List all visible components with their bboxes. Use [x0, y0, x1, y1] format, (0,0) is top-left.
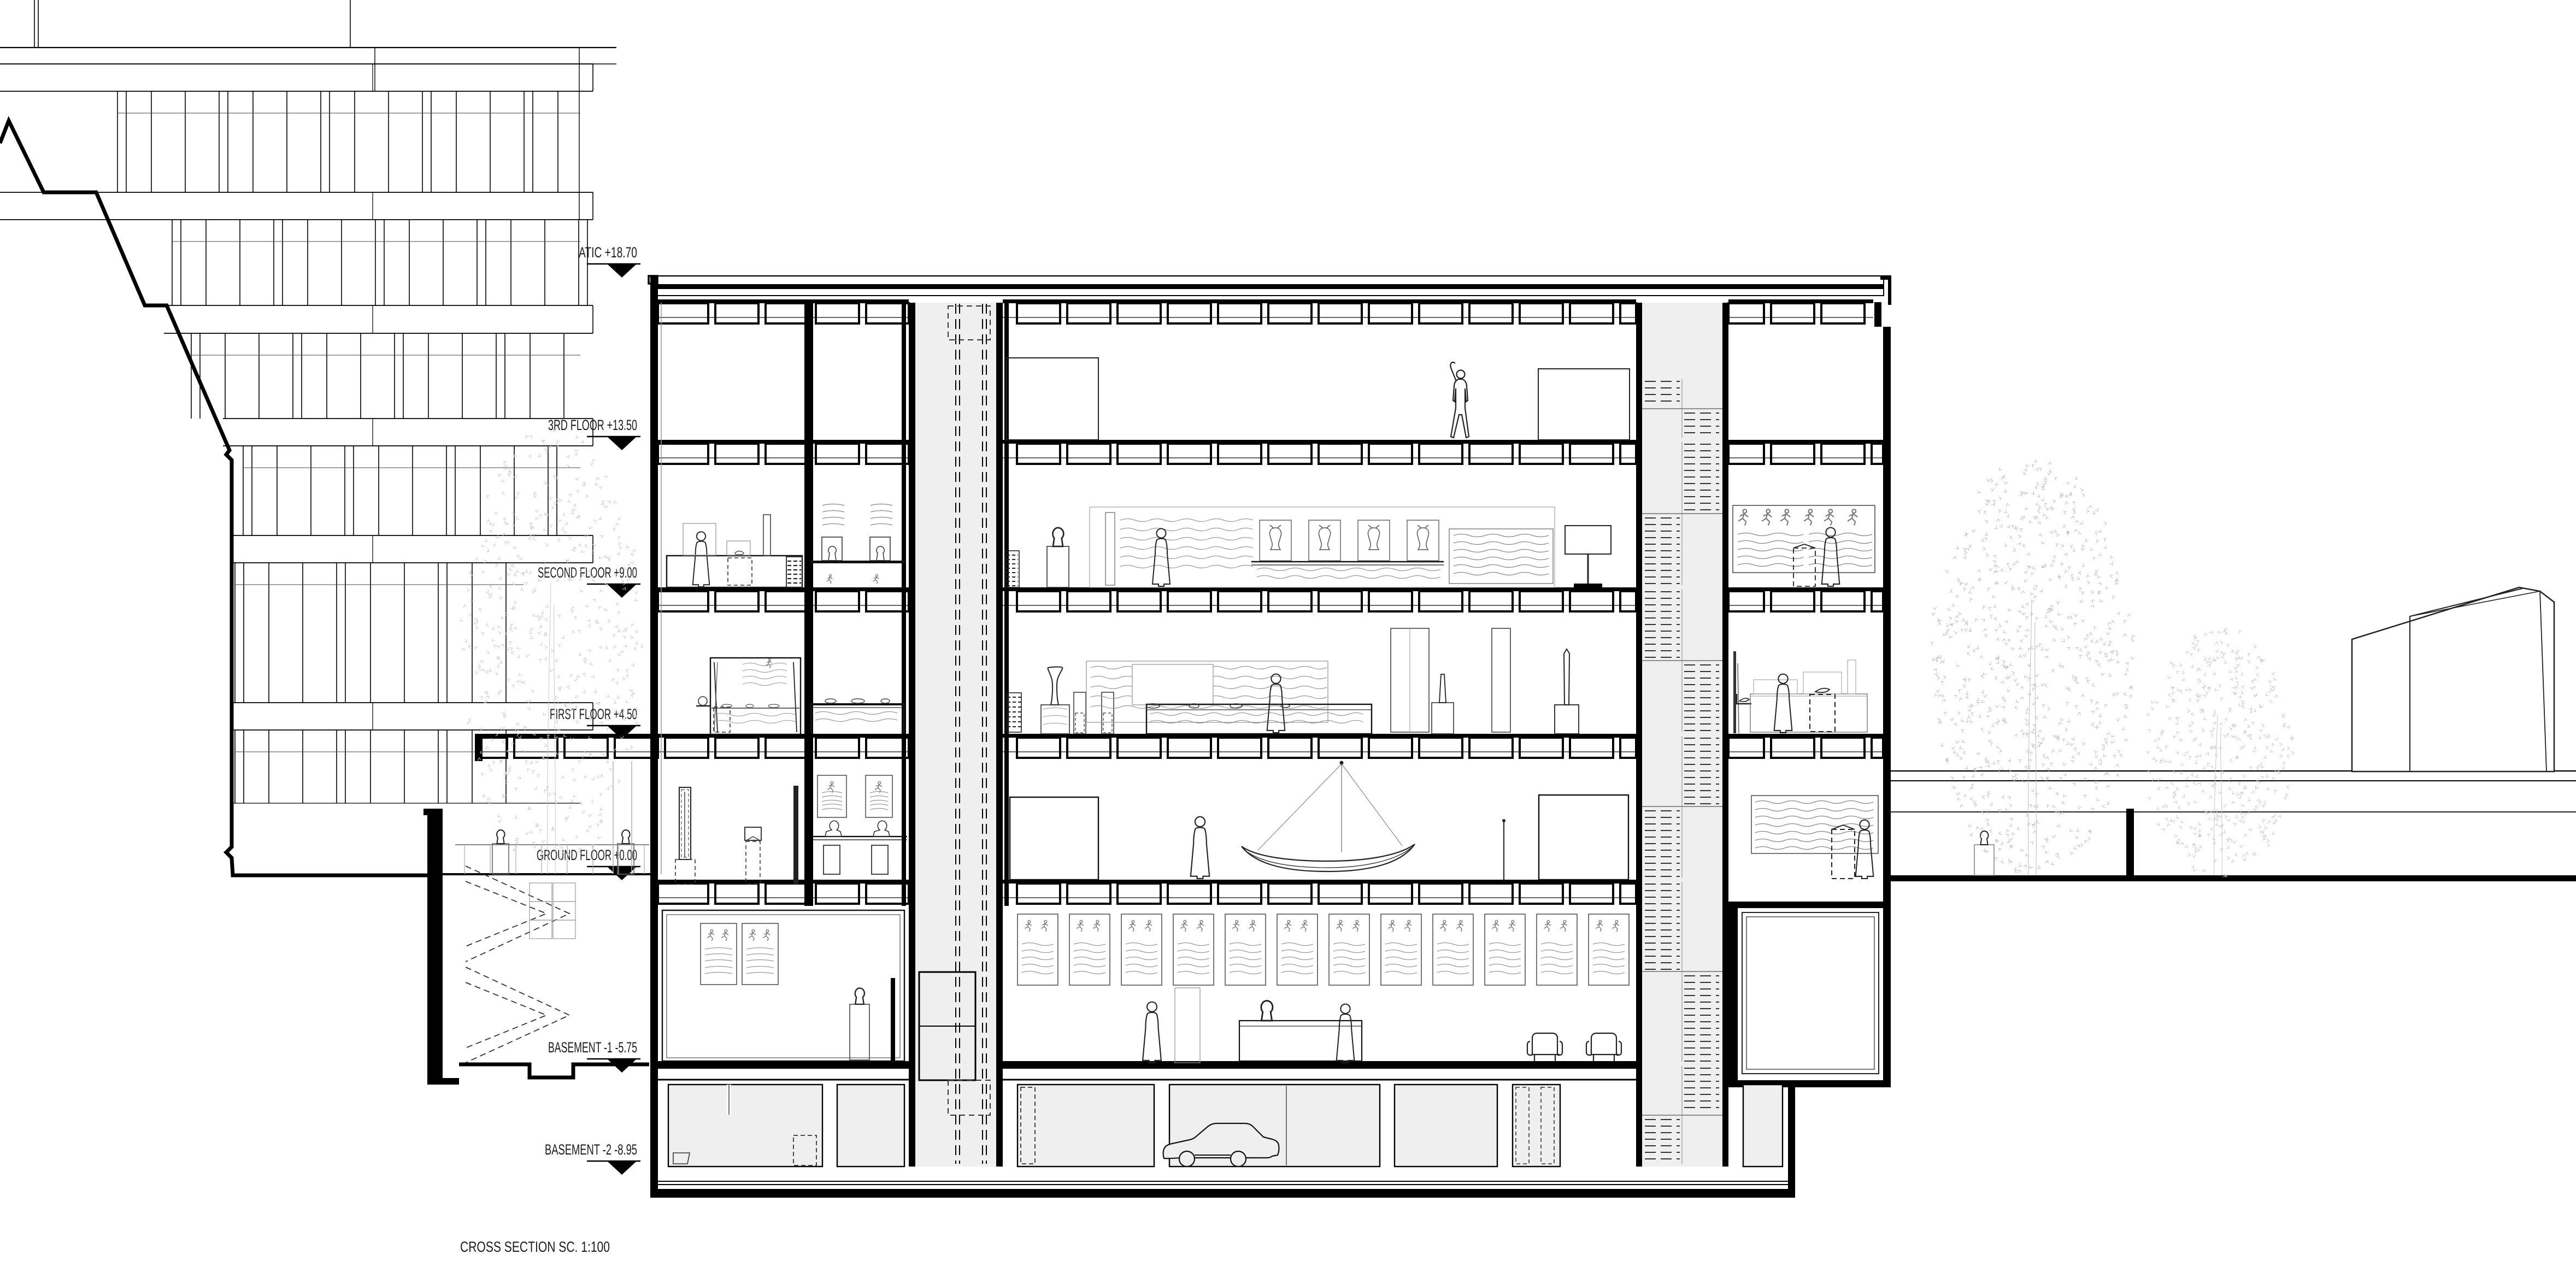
- svg-text:CROSS SECTION SC. 1:100: CROSS SECTION SC. 1:100: [460, 1239, 610, 1255]
- svg-text:ATIC +18.70: ATIC +18.70: [579, 244, 637, 261]
- svg-text:3RD FLOOR +13.50: 3RD FLOOR +13.50: [548, 417, 637, 433]
- svg-text:BASEMENT -2 -8.95: BASEMENT -2 -8.95: [545, 1141, 637, 1158]
- svg-text:SECOND FLOOR +9.00: SECOND FLOOR +9.00: [538, 564, 637, 581]
- svg-text:GROUND FLOOR +0.00: GROUND FLOOR +0.00: [537, 847, 637, 863]
- svg-text:BASEMENT -1 -5.75: BASEMENT -1 -5.75: [548, 1039, 637, 1056]
